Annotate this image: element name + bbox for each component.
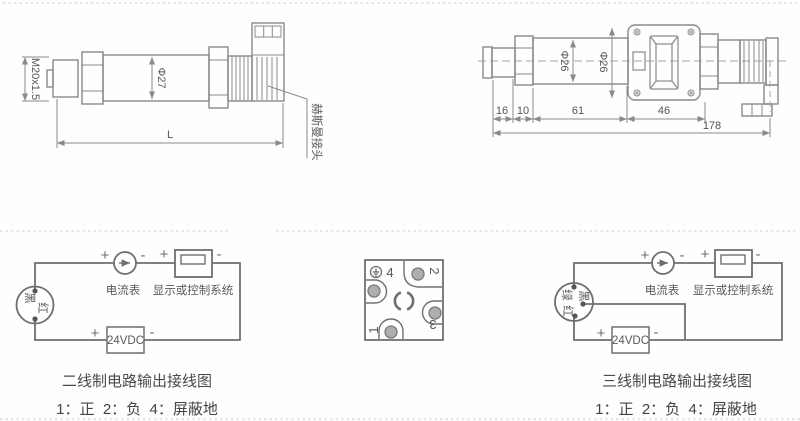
device-display-view xyxy=(478,25,788,116)
ammeter xyxy=(114,252,136,274)
datasheet-page: M20x1.5 Φ27 L 赫斯曼接头 xyxy=(0,0,800,421)
display-window xyxy=(650,36,678,89)
dim-16: 16 xyxy=(496,105,508,117)
ammeter xyxy=(652,252,674,274)
ammeter-plus: + xyxy=(641,247,650,264)
ground-pin xyxy=(371,267,382,278)
hirschmann-label: 赫斯曼接头 xyxy=(310,103,323,161)
thread-label: M20x1.5 xyxy=(29,58,41,100)
phi26-head-label: Φ26 xyxy=(597,51,609,72)
supply-label: 24VDC xyxy=(107,335,144,347)
extension-lines xyxy=(493,79,770,137)
display-head-box xyxy=(628,25,700,100)
corner-screws xyxy=(634,29,694,96)
length-label: L xyxy=(167,129,173,141)
dim-61: 61 xyxy=(572,105,584,117)
three-wire-circuit: 绿 黑 红 + - 电流表 + - 显示或控制系统 24VDC + - 三线制电… xyxy=(555,246,782,418)
supply-minus: - xyxy=(150,324,155,341)
connector-leader-line xyxy=(268,86,307,158)
wire-red-label: 红 xyxy=(561,305,574,317)
supply-plus: + xyxy=(597,325,606,342)
supply-label: 24VDC xyxy=(612,335,649,347)
terminal-dot-right xyxy=(580,301,585,306)
pin-3-number: 3 xyxy=(429,317,436,332)
cable-terminal-block xyxy=(742,104,772,116)
device-side-view xyxy=(47,23,284,108)
display-plus: + xyxy=(160,246,169,263)
pressure-port xyxy=(53,60,78,97)
display-system-box xyxy=(715,250,752,277)
ammeter-label: 电流表 xyxy=(645,283,680,297)
hex-nut-left xyxy=(82,52,103,104)
three-wire-legend: 1：正 2：负 4：屏蔽地 xyxy=(595,401,757,418)
phi26-body-label: Φ26 xyxy=(558,50,570,71)
connector-pinout: 4 2 1 3 xyxy=(365,260,443,340)
center-keyway-ring xyxy=(395,293,413,310)
ribbed-connector xyxy=(740,40,766,83)
display-label: 显示或控制系统 xyxy=(153,283,234,297)
pin-2-number: 2 xyxy=(427,267,442,274)
ammeter-minus: - xyxy=(680,247,685,264)
dim-10: 10 xyxy=(517,105,529,117)
hex-nut-right xyxy=(209,47,228,108)
page-separators xyxy=(0,3,800,419)
two-wire-legend: 1：正 2：负 4：屏蔽地 xyxy=(56,401,218,418)
terminal-dot-bottom xyxy=(32,316,37,321)
wire-green-label: 绿 xyxy=(560,289,574,301)
display-minus: - xyxy=(217,246,222,263)
wire-black-label: 黑 xyxy=(23,292,36,304)
datasheet-canvas: M20x1.5 Φ27 L 赫斯曼接头 xyxy=(0,0,800,421)
ribbed-gland xyxy=(228,56,252,101)
three-wire-title: 三线制电路输出接线图 xyxy=(602,373,752,390)
display-minus: - xyxy=(756,246,761,263)
pressure-port-tip xyxy=(47,70,53,87)
pin-aux-contact xyxy=(368,285,380,297)
pin-4-number: 4 xyxy=(386,265,393,280)
display-label: 显示或控制系统 xyxy=(693,283,774,297)
supply-plus: + xyxy=(91,325,100,342)
two-wire-circuit: 黑 红 + - 电流表 + - 显示或控制系统 24VDC + - 二线制电路输… xyxy=(17,246,241,418)
pin-1-contact xyxy=(385,326,397,338)
wire-red-label: 红 xyxy=(36,302,49,314)
port-thread xyxy=(492,48,515,77)
ammeter-minus: - xyxy=(141,247,146,264)
display-system-box xyxy=(175,250,212,277)
phi27-label: Φ27 xyxy=(155,67,167,88)
two-wire-title: 二线制电路输出接线图 xyxy=(62,373,212,390)
elbow-stem xyxy=(764,85,778,104)
display-plus: + xyxy=(701,246,710,263)
device-left-dimensions: M20x1.5 Φ27 L 赫斯曼接头 xyxy=(22,57,323,161)
dim-46: 46 xyxy=(658,105,670,117)
pin-1-number: 1 xyxy=(366,326,381,333)
dim-178: 178 xyxy=(703,120,721,132)
supply-minus: - xyxy=(654,324,659,341)
port-cap xyxy=(483,47,492,78)
ammeter-plus: + xyxy=(101,247,110,264)
pin-2-contact xyxy=(412,268,424,280)
ammeter-label: 电流表 xyxy=(106,283,141,297)
wire-black-label: 黑 xyxy=(577,290,590,302)
